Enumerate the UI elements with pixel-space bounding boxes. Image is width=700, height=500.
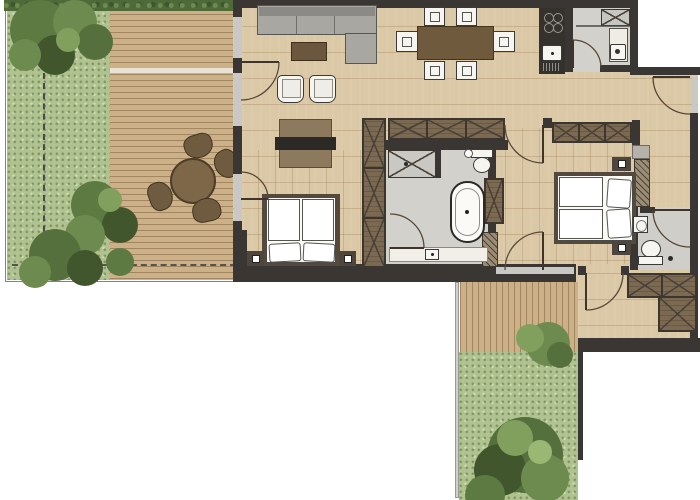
chair-inner <box>499 37 509 47</box>
hall-shelf <box>634 159 650 207</box>
sink-drainer <box>543 63 561 71</box>
cooktop-burner <box>553 13 563 23</box>
entrance-threshold <box>692 77 697 113</box>
bed2-duvet <box>559 209 603 239</box>
corner-sofa-back <box>259 7 375 16</box>
chair-inner <box>402 37 412 47</box>
door-post-vestibule-left <box>578 266 586 275</box>
bed1-duvet <box>302 199 334 241</box>
bedroom1-wardrobe <box>362 118 386 268</box>
shower-drain <box>404 162 408 166</box>
bathtub-drain <box>465 210 469 214</box>
mullion <box>233 126 242 174</box>
west-terrace-deck <box>110 8 240 280</box>
nightstand-lamp <box>618 160 626 168</box>
nightstand-lamp <box>252 255 260 263</box>
dining-table <box>417 26 494 60</box>
hall-niche <box>632 145 650 159</box>
armchair-seat <box>314 79 333 98</box>
wall-entry-north <box>630 67 700 75</box>
wall-east <box>690 113 698 275</box>
sofa-cushion-line <box>334 16 335 34</box>
mullion <box>233 8 242 17</box>
boundary-dashed-line <box>43 12 45 262</box>
wc-washbasin-bowl <box>636 220 647 232</box>
bed1-pillow <box>303 242 336 263</box>
armchair-seat <box>282 79 301 98</box>
south-terrace-deck <box>460 282 578 352</box>
bathroom-east-cabinet <box>484 178 504 224</box>
bed1-pillow <box>269 242 302 263</box>
bed2-pillow <box>606 208 632 239</box>
sofa-cushion-line <box>296 16 297 34</box>
washing-machine-door <box>615 49 620 54</box>
mullion <box>233 221 242 232</box>
wall-utility-east <box>630 0 638 70</box>
sink-drain-dot <box>551 52 554 55</box>
vanity-sink-drain <box>431 253 434 256</box>
wall-utility-west <box>565 0 573 72</box>
chair-inner <box>462 66 472 76</box>
coffee-table <box>291 42 327 61</box>
wc-toilet-cistern <box>638 256 663 265</box>
hall-wardrobe <box>388 118 505 140</box>
bed2-duvet <box>559 177 603 207</box>
bed2-pillow <box>606 178 632 209</box>
wall-hall-post-b <box>543 118 552 128</box>
floor-plan <box>0 0 700 500</box>
cooktop-burner <box>553 23 563 33</box>
bed1-duvet <box>268 199 300 241</box>
south-window-bedroom2 <box>496 267 574 274</box>
nightstand-lamp <box>344 255 352 263</box>
sofa-chaise <box>345 33 377 64</box>
south-lawn <box>459 352 578 500</box>
toilet-paper-roll <box>464 149 473 158</box>
bedroom2-wardrobe <box>552 122 632 143</box>
wall-vestibule-south <box>570 338 700 352</box>
chair-inner <box>430 12 440 22</box>
west-glazed-wall <box>234 8 242 232</box>
vestibule-closet-side <box>658 296 697 332</box>
deck-step-line <box>110 68 240 73</box>
nightstand-lamp <box>618 244 626 252</box>
wc-floor-drain <box>668 256 673 261</box>
wall-shower-stub <box>436 150 441 178</box>
vestibule-closet-top <box>627 273 697 298</box>
outside-area <box>638 0 700 67</box>
utility-shower-tray <box>601 9 630 26</box>
tv-bar <box>275 137 336 150</box>
wall-wc-north-stub <box>640 207 655 213</box>
toilet-bowl <box>473 157 491 173</box>
hedge-strip <box>4 0 234 11</box>
garden-lawn <box>7 8 110 280</box>
bathroom-shower <box>388 150 436 178</box>
wall-west-corner <box>233 230 247 282</box>
terrace-dashed-line <box>12 264 236 266</box>
wall-bed2-hall <box>632 120 640 145</box>
wall-utility-south <box>600 65 638 72</box>
mullion <box>233 58 242 73</box>
chair-inner <box>462 12 472 22</box>
chair-inner <box>430 66 440 76</box>
